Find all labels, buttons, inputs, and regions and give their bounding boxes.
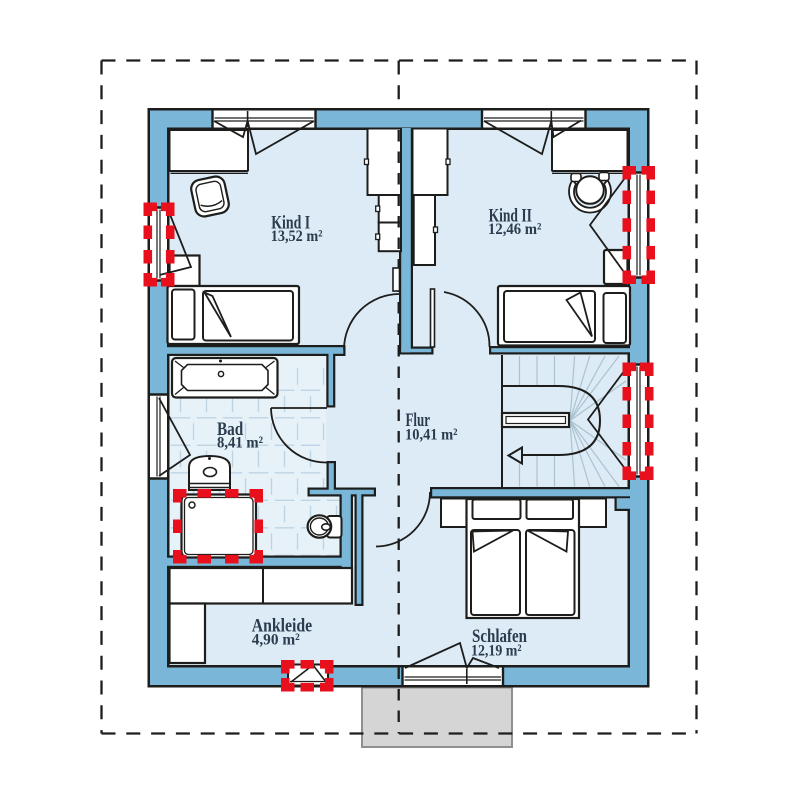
svg-text:10,41 m²: 10,41 m² bbox=[405, 426, 458, 444]
svg-text:4,90 m²: 4,90 m² bbox=[252, 631, 300, 649]
svg-text:8,41 m²: 8,41 m² bbox=[217, 434, 263, 452]
svg-text:12,46 m²: 12,46 m² bbox=[488, 220, 542, 238]
svg-text:12,19 m²: 12,19 m² bbox=[471, 642, 522, 660]
svg-text:13,52 m²: 13,52 m² bbox=[271, 227, 323, 245]
